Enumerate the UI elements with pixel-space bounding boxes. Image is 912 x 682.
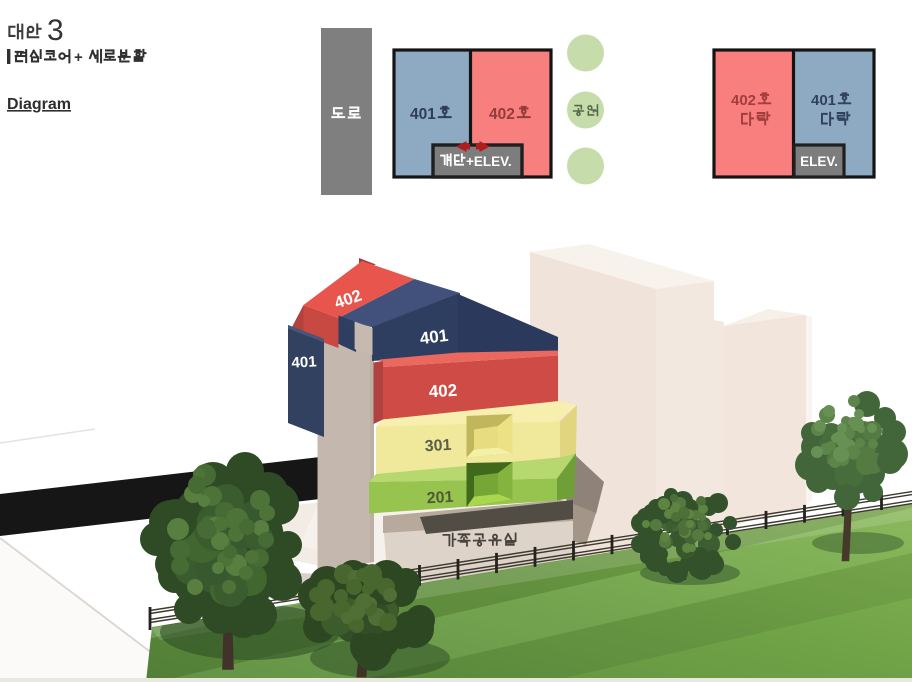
svg-text:402: 402 (428, 381, 457, 401)
svg-text:3: 3 (47, 14, 64, 47)
svg-text:401: 401 (291, 353, 317, 371)
svg-text:401: 401 (410, 106, 436, 123)
svg-text:401: 401 (419, 326, 449, 348)
svg-text:ELEV.: ELEV. (800, 154, 838, 169)
svg-text:402: 402 (489, 106, 515, 123)
svg-text:+ELEV.: +ELEV. (466, 154, 512, 169)
svg-text:201: 201 (426, 489, 454, 507)
svg-text:401: 401 (811, 92, 836, 109)
svg-text:402: 402 (731, 92, 756, 109)
svg-text:Diagram: Diagram (7, 96, 71, 113)
svg-text:+: + (74, 49, 83, 66)
svg-text:301: 301 (424, 437, 452, 455)
